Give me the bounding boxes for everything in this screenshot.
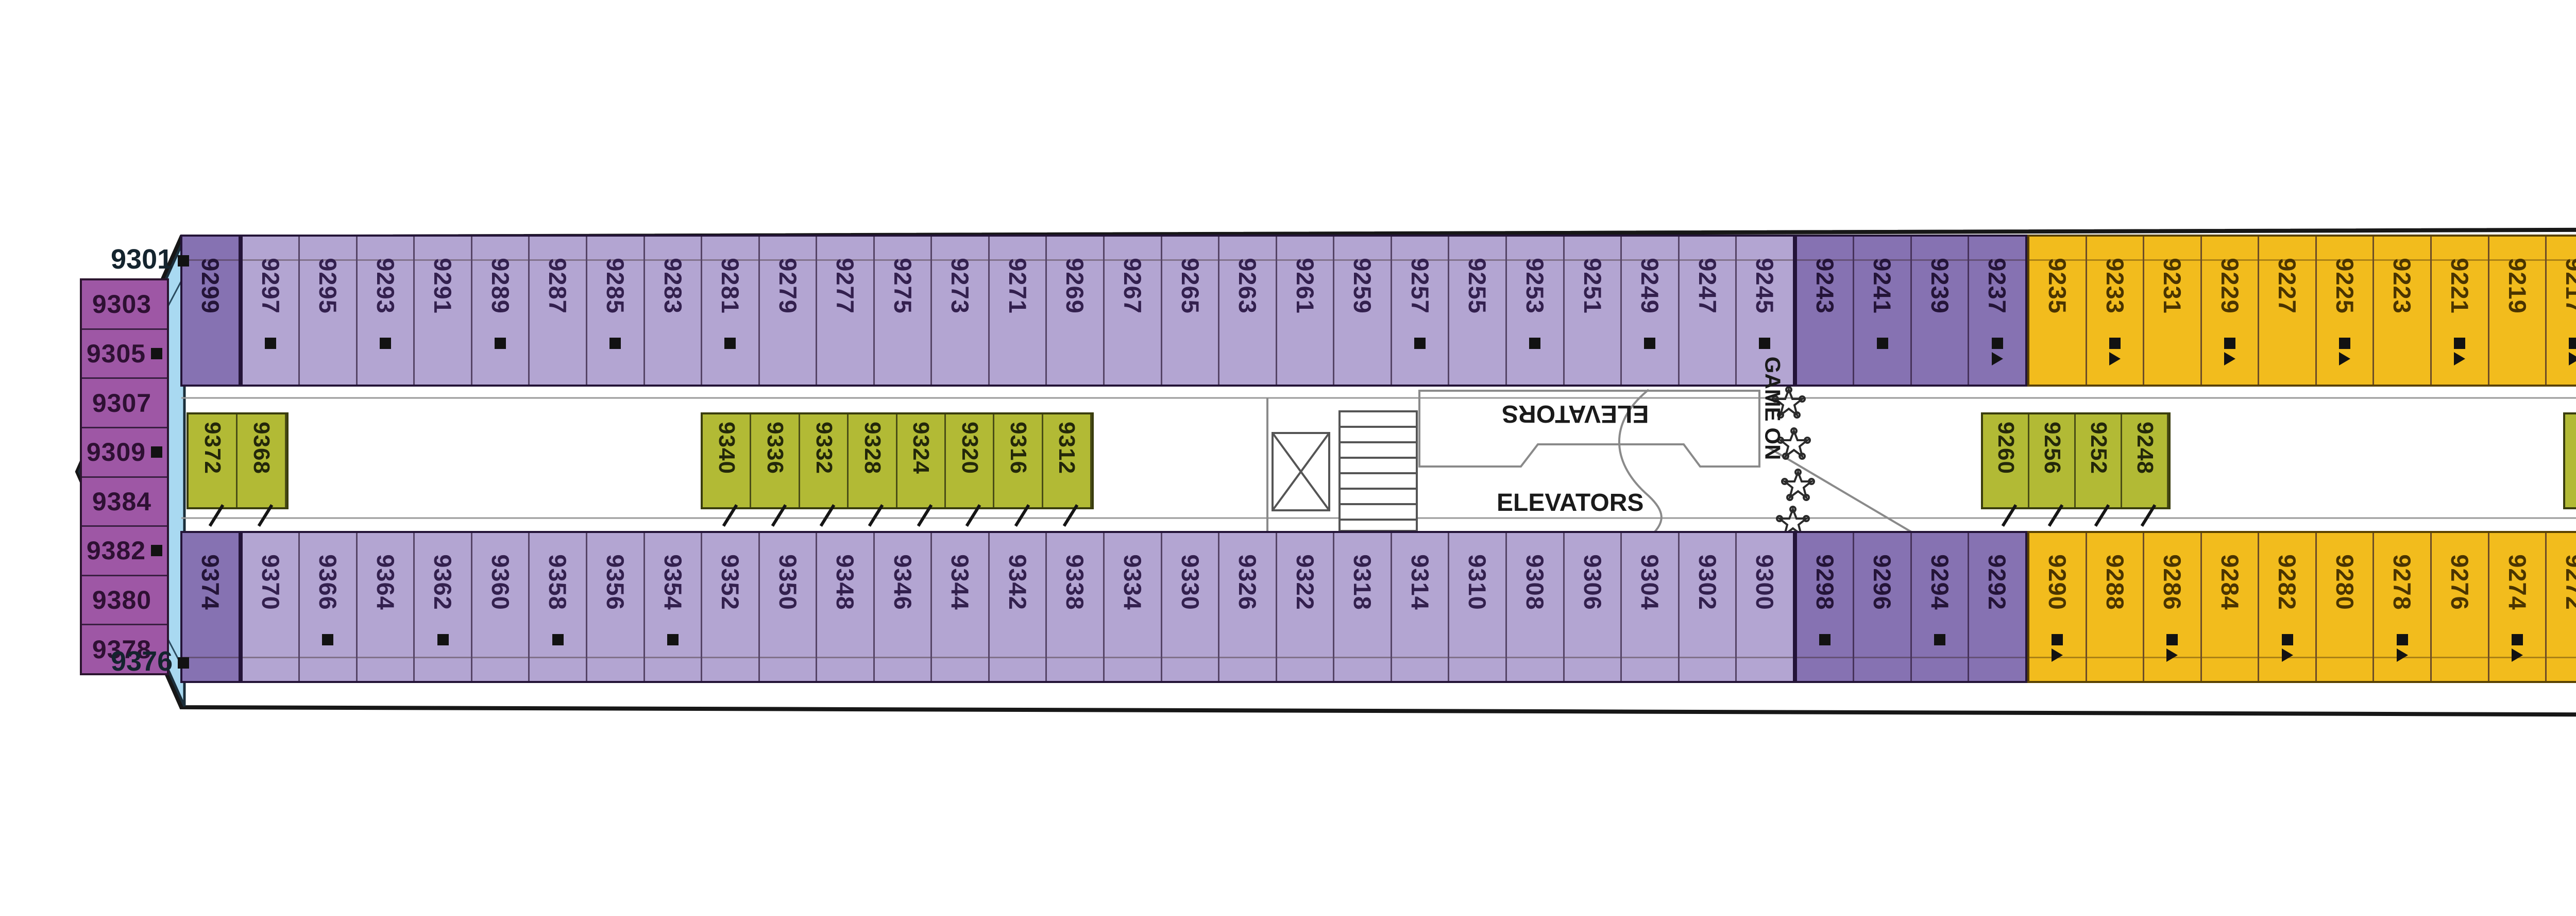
cabin-markers bbox=[609, 335, 621, 349]
cabin-9314[interactable]: 9314 bbox=[1392, 533, 1450, 681]
cabin-group: 9298929692949292 bbox=[1795, 531, 2027, 683]
cabin-9276[interactable]: 9276 bbox=[2432, 533, 2489, 681]
triangle-marker-icon bbox=[2339, 352, 2350, 365]
square-marker-icon bbox=[1934, 634, 1945, 645]
square-marker-icon bbox=[178, 255, 189, 267]
cabin-9221[interactable]: 9221 bbox=[2432, 237, 2489, 385]
cabin-9336[interactable]: 9336 bbox=[751, 414, 800, 507]
cabin-9253[interactable]: 9253 bbox=[1507, 237, 1565, 385]
cabin-9274[interactable]: 9274 bbox=[2489, 533, 2547, 681]
cabin-9384[interactable]: 9384 bbox=[82, 478, 167, 527]
square-marker-icon bbox=[437, 634, 449, 645]
cabin-markers bbox=[1934, 631, 1945, 645]
triangle-marker-icon bbox=[2166, 648, 2178, 662]
cabin-9294[interactable]: 9294 bbox=[1912, 533, 1970, 681]
cabin-9309[interactable]: 9309 bbox=[82, 428, 167, 478]
cabin-9354[interactable]: 9354 bbox=[645, 533, 703, 681]
bow-cabin-column: 93039305930793099384938293809378 bbox=[80, 278, 169, 675]
cabin-9279[interactable]: 9279 bbox=[760, 237, 818, 385]
cabin-markers bbox=[2454, 335, 2465, 365]
cabin-9247[interactable]: 9247 bbox=[1680, 237, 1737, 385]
square-marker-icon bbox=[2512, 634, 2523, 645]
ship-hull-outline bbox=[0, 0, 2576, 916]
cabin-markers bbox=[1644, 335, 1655, 349]
triangle-marker-icon bbox=[2569, 352, 2576, 365]
square-marker-icon bbox=[667, 634, 679, 645]
cabin-markers bbox=[1414, 335, 1426, 349]
cabin-group: 9370936693649362936093589356935493529350… bbox=[241, 531, 1795, 683]
cabin-markers bbox=[2052, 631, 2063, 662]
cabin-group: 9235923392319229922792259223922192199217 bbox=[2027, 235, 2576, 387]
cabin-markers bbox=[2224, 335, 2235, 365]
cabin-9324[interactable]: 9324 bbox=[897, 414, 946, 507]
square-marker-icon bbox=[265, 338, 276, 349]
cabin-markers bbox=[724, 335, 736, 349]
cabin-markers bbox=[2512, 631, 2523, 662]
triangle-marker-icon bbox=[2454, 352, 2465, 365]
cabin-row-bottom: 9374937093669364936293609358935693549352… bbox=[180, 531, 2576, 683]
cabin-9350[interactable]: 9350 bbox=[760, 533, 818, 681]
cabin-9312[interactable]: 9312 bbox=[1043, 414, 1092, 507]
square-marker-icon bbox=[380, 338, 391, 349]
cabin-markers bbox=[2109, 335, 2121, 365]
square-marker-icon bbox=[1644, 338, 1655, 349]
square-marker-icon bbox=[178, 657, 189, 669]
cabin-9225[interactable]: 9225 bbox=[2317, 237, 2375, 385]
cabin-group: 9243924192399237 bbox=[1795, 235, 2027, 387]
square-marker-icon bbox=[2282, 634, 2293, 645]
cabin-9302[interactable]: 9302 bbox=[1680, 533, 1737, 681]
triangle-marker-icon bbox=[2224, 352, 2235, 365]
cabin-9342[interactable]: 9342 bbox=[990, 533, 1047, 681]
square-marker-icon bbox=[2224, 338, 2235, 349]
cabin-markers bbox=[151, 348, 162, 359]
triangle-marker-icon bbox=[2397, 648, 2408, 662]
cabin-9290[interactable]: 9290 bbox=[2029, 533, 2087, 681]
square-marker-icon bbox=[151, 545, 162, 556]
cabin-9285[interactable]: 9285 bbox=[587, 237, 645, 385]
square-marker-icon bbox=[322, 634, 333, 645]
cabin-markers bbox=[495, 335, 506, 349]
cabin-9310[interactable]: 9310 bbox=[1449, 533, 1507, 681]
cabin-9241[interactable]: 9241 bbox=[1854, 237, 1912, 385]
cabin-9362[interactable]: 9362 bbox=[415, 533, 472, 681]
square-marker-icon bbox=[1759, 338, 1770, 349]
cabin-group: 9297929592939291928992879285928392819279… bbox=[241, 235, 1795, 387]
deck-plan: 9299929792959293929192899287928592839281… bbox=[0, 0, 2576, 916]
cabin-9358[interactable]: 9358 bbox=[530, 533, 587, 681]
cabin-9272[interactable]: 9272 bbox=[2547, 533, 2576, 681]
cabin-9334[interactable]: 9334 bbox=[1105, 533, 1162, 681]
cabin-markers bbox=[2166, 631, 2178, 662]
cabin-9223[interactable]: 9223 bbox=[2374, 237, 2432, 385]
cabin-9292[interactable]: 9292 bbox=[1969, 533, 2025, 681]
cabin-9239[interactable]: 9239 bbox=[1912, 237, 1970, 385]
cabin-9275[interactable]: 9275 bbox=[875, 237, 933, 385]
cabin-group: 9374 bbox=[180, 531, 241, 683]
square-marker-icon bbox=[2339, 338, 2350, 349]
cabin-9344[interactable]: 9344 bbox=[932, 533, 990, 681]
square-marker-icon bbox=[151, 446, 162, 458]
cabin-9280[interactable]: 9280 bbox=[2317, 533, 2375, 681]
cabin-markers bbox=[552, 631, 564, 645]
cabin-9360[interactable]: 9360 bbox=[472, 533, 530, 681]
triangle-marker-icon bbox=[2512, 648, 2523, 662]
cabin-9261[interactable]: 9261 bbox=[1277, 237, 1335, 385]
cabin-9306[interactable]: 9306 bbox=[1565, 533, 1622, 681]
triangle-marker-icon bbox=[1992, 352, 2003, 365]
cabin-9293[interactable]: 9293 bbox=[358, 237, 415, 385]
cabin-9364[interactable]: 9364 bbox=[358, 533, 415, 681]
square-marker-icon bbox=[1992, 338, 2003, 349]
cabin-9257[interactable]: 9257 bbox=[1392, 237, 1450, 385]
cabin-9346[interactable]: 9346 bbox=[875, 533, 933, 681]
elevators-label-mid-top: ELEVATORS bbox=[1502, 399, 1649, 428]
cabin-9229[interactable]: 9229 bbox=[2202, 237, 2260, 385]
cabin-9376[interactable]: 9376 bbox=[111, 645, 189, 677]
elevators-label-mid-bottom: ELEVATORS bbox=[1497, 489, 1643, 517]
cabin-9326[interactable]: 9326 bbox=[1219, 533, 1277, 681]
square-marker-icon bbox=[2454, 338, 2465, 349]
triangle-marker-icon bbox=[2052, 648, 2063, 662]
cabin-9366[interactable]: 9366 bbox=[300, 533, 358, 681]
cabin-markers bbox=[2397, 631, 2408, 662]
cabin-markers bbox=[667, 631, 679, 645]
cabin-9295[interactable]: 9295 bbox=[300, 237, 358, 385]
cabin-9248[interactable]: 9248 bbox=[2122, 414, 2168, 507]
square-marker-icon bbox=[2397, 634, 2408, 645]
cabin-9283[interactable]: 9283 bbox=[645, 237, 703, 385]
cabin-9332[interactable]: 9332 bbox=[800, 414, 849, 507]
square-marker-icon bbox=[2569, 338, 2576, 349]
cabin-9281[interactable]: 9281 bbox=[702, 237, 760, 385]
cabin-markers bbox=[437, 631, 449, 645]
cabin-row-top: 9299929792959293929192899287928592839281… bbox=[180, 235, 2576, 387]
cabin-9243[interactable]: 9243 bbox=[1797, 237, 1855, 385]
cabin-markers bbox=[322, 631, 333, 645]
cabin-9298[interactable]: 9298 bbox=[1797, 533, 1855, 681]
square-marker-icon bbox=[2166, 634, 2178, 645]
cabin-9318[interactable]: 9318 bbox=[1334, 533, 1392, 681]
cabin-9233[interactable]: 9233 bbox=[2087, 237, 2145, 385]
cabin-markers bbox=[1992, 335, 2003, 365]
cabin-9322[interactable]: 9322 bbox=[1277, 533, 1335, 681]
cabin-9380[interactable]: 9380 bbox=[82, 576, 167, 626]
cabin-9277[interactable]: 9277 bbox=[817, 237, 875, 385]
cabin-9269[interactable]: 9269 bbox=[1047, 237, 1105, 385]
cabin-9368[interactable]: 9368 bbox=[238, 414, 286, 507]
cabin-9271[interactable]: 9271 bbox=[990, 237, 1047, 385]
cabin-9297[interactable]: 9297 bbox=[243, 237, 300, 385]
square-marker-icon bbox=[1529, 338, 1540, 349]
cabin-markers bbox=[2569, 335, 2576, 365]
cabin-9356[interactable]: 9356 bbox=[587, 533, 645, 681]
cabin-9374[interactable]: 9374 bbox=[182, 533, 239, 681]
cabin-markers bbox=[1759, 335, 1770, 349]
interior-band-d: 9220921692129206♿9202♿9196♿ bbox=[2563, 412, 2576, 509]
cabin-9231[interactable]: 9231 bbox=[2144, 237, 2202, 385]
cabin-9220[interactable]: 9220 bbox=[2565, 414, 2576, 507]
square-marker-icon bbox=[2109, 338, 2121, 349]
cabin-9286[interactable]: 9286 bbox=[2144, 533, 2202, 681]
square-marker-icon bbox=[552, 634, 564, 645]
cabin-9320[interactable]: 9320 bbox=[946, 414, 994, 507]
interior-band-a: 93729368 bbox=[187, 412, 289, 509]
cabin-9328[interactable]: 9328 bbox=[849, 414, 897, 507]
cabin-9265[interactable]: 9265 bbox=[1162, 237, 1220, 385]
cabin-9260[interactable]: 9260 bbox=[1983, 414, 2029, 507]
cabin-9237[interactable]: 9237 bbox=[1969, 237, 2025, 385]
square-marker-icon bbox=[1414, 338, 1426, 349]
cabin-markers bbox=[1877, 335, 1888, 349]
cabin-9278[interactable]: 9278 bbox=[2374, 533, 2432, 681]
triangle-marker-icon bbox=[2282, 648, 2293, 662]
cabin-markers bbox=[2339, 335, 2350, 365]
cabin-9370[interactable]: 9370 bbox=[243, 533, 300, 681]
cabin-markers bbox=[151, 545, 162, 556]
cabin-9338[interactable]: 9338 bbox=[1047, 533, 1105, 681]
cabin-9282[interactable]: 9282 bbox=[2259, 533, 2317, 681]
cabin-9316[interactable]: 9316 bbox=[994, 414, 1043, 507]
square-marker-icon bbox=[609, 338, 621, 349]
square-marker-icon bbox=[151, 348, 162, 359]
cabin-number: 9376 bbox=[111, 645, 173, 677]
cabin-9340[interactable]: 9340 bbox=[703, 414, 751, 507]
cabin-9217[interactable]: 9217 bbox=[2547, 237, 2576, 385]
cabin-9299[interactable]: 9299 bbox=[182, 237, 239, 385]
cabin-9330[interactable]: 9330 bbox=[1162, 533, 1220, 681]
cabin-9252[interactable]: 9252 bbox=[2076, 414, 2122, 507]
cabin-9308[interactable]: 9308 bbox=[1507, 533, 1565, 681]
interior-band-b: 93409336933293289324932093169312 bbox=[701, 412, 1094, 509]
cabin-9267[interactable]: 9267 bbox=[1105, 237, 1162, 385]
square-marker-icon bbox=[724, 338, 736, 349]
cabin-9372[interactable]: 9372 bbox=[189, 414, 238, 507]
cabin-group: 9299 bbox=[180, 235, 241, 387]
cabin-9256[interactable]: 9256 bbox=[2029, 414, 2076, 507]
cabin-group: 9290928892869284928292809278927692749272 bbox=[2027, 531, 2576, 683]
triangle-marker-icon bbox=[2109, 352, 2121, 365]
cabin-9227[interactable]: 9227 bbox=[2259, 237, 2317, 385]
cabin-9307[interactable]: 9307 bbox=[82, 379, 167, 428]
cabin-9249[interactable]: 9249 bbox=[1622, 237, 1680, 385]
square-marker-icon bbox=[1877, 338, 1888, 349]
cabin-9289[interactable]: 9289 bbox=[472, 237, 530, 385]
cabin-9259[interactable]: 9259 bbox=[1334, 237, 1392, 385]
cabin-9287[interactable]: 9287 bbox=[530, 237, 587, 385]
square-marker-icon bbox=[495, 338, 506, 349]
cabin-9300[interactable]: 9300 bbox=[1737, 533, 1793, 681]
cabin-number: 9301 bbox=[111, 243, 173, 275]
cabin-9288[interactable]: 9288 bbox=[2087, 533, 2145, 681]
game-on-label: GAME ON bbox=[1721, 396, 1824, 421]
cabin-markers bbox=[380, 335, 391, 349]
cabin-9291[interactable]: 9291 bbox=[415, 237, 472, 385]
square-marker-icon bbox=[1819, 634, 1831, 645]
cabin-9352[interactable]: 9352 bbox=[702, 533, 760, 681]
cabin-9235[interactable]: 9235 bbox=[2029, 237, 2087, 385]
cabin-9255[interactable]: 9255 bbox=[1449, 237, 1507, 385]
cabin-9273[interactable]: 9273 bbox=[932, 237, 990, 385]
cabin-9263[interactable]: 9263 bbox=[1219, 237, 1277, 385]
cabin-markers bbox=[265, 335, 276, 349]
cabin-9301[interactable]: 9301 bbox=[111, 243, 189, 275]
cabin-9304[interactable]: 9304 bbox=[1622, 533, 1680, 681]
cabin-9303[interactable]: 9303 bbox=[82, 280, 167, 330]
cabin-9305[interactable]: 9305 bbox=[82, 330, 167, 379]
square-marker-icon bbox=[2052, 634, 2063, 645]
cabin-9284[interactable]: 9284 bbox=[2202, 533, 2260, 681]
cabin-9348[interactable]: 9348 bbox=[817, 533, 875, 681]
cabin-markers bbox=[1819, 631, 1831, 645]
cabin-9251[interactable]: 9251 bbox=[1565, 237, 1622, 385]
cabin-9296[interactable]: 9296 bbox=[1854, 533, 1912, 681]
cabin-markers bbox=[151, 446, 162, 458]
cabin-markers bbox=[2282, 631, 2293, 662]
cabin-markers bbox=[1529, 335, 1540, 349]
cabin-9382[interactable]: 9382 bbox=[82, 527, 167, 576]
cabin-9219[interactable]: 9219 bbox=[2489, 237, 2547, 385]
interior-band-c: 9260925692529248 bbox=[1981, 412, 2171, 509]
